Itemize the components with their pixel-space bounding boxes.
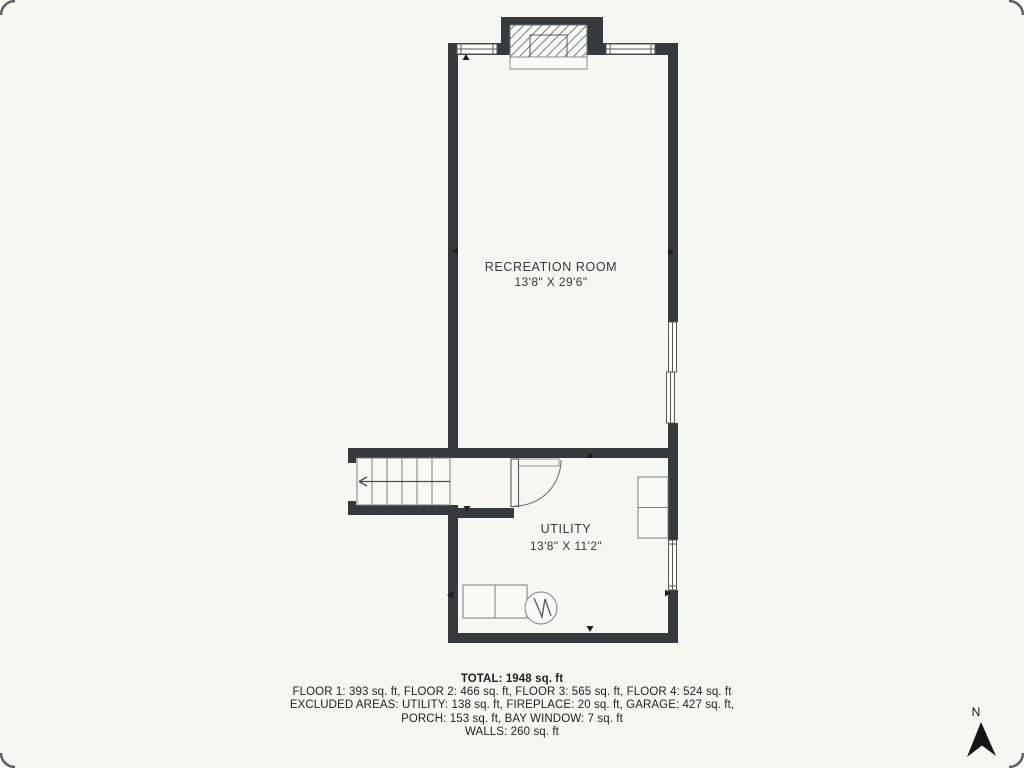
summary-floors: FLOOR 1: 393 sq. ft, FLOOR 2: 466 sq. ft… [0, 686, 1024, 699]
area-summary: TOTAL: 1948 sq. ft FLOOR 1: 393 sq. ft, … [0, 673, 1024, 739]
water-heater [525, 592, 557, 624]
window-top-left [457, 44, 497, 54]
window-right-lower [667, 372, 675, 423]
recreation-room-label: RECREATION ROOM [485, 260, 617, 274]
window-right-upper [669, 322, 677, 372]
utility-room-label: UTILITY [541, 522, 592, 536]
door [511, 459, 561, 507]
washer-dryer [463, 585, 527, 618]
door-leaf [511, 459, 519, 507]
north-label: N [972, 705, 981, 719]
door-opening-frame [513, 459, 559, 466]
fireplace [501, 17, 603, 69]
summary-total: TOTAL: 1948 sq. ft [0, 673, 1024, 686]
summary-excluded-areas: EXCLUDED AREAS: UTILITY: 138 sq. ft, FIR… [0, 699, 1024, 712]
fireplace-hearth [510, 57, 587, 69]
corner-arcs [1, 1, 1023, 767]
stairs [357, 458, 450, 505]
recreation-room-dimensions: 13'8" X 29'6" [514, 275, 587, 289]
util-height-arrow-bottom [587, 626, 594, 632]
floor-plan-drawing [0, 0, 1024, 768]
door-swing-arc [515, 460, 561, 506]
walls [348, 43, 678, 643]
cabinet [638, 477, 668, 538]
window-top-right [606, 44, 655, 54]
fireplace-hatch [510, 25, 587, 57]
summary-excluded-areas-cont: PORCH: 153 sq. ft, BAY WINDOW: 7 sq. ft [0, 713, 1024, 726]
utility-room-dimensions: 13'8" X 11'2" [530, 539, 602, 553]
floor-plan-page: RECREATION ROOM 13'8" X 29'6" UTILITY 13… [0, 0, 1024, 768]
summary-walls: WALLS: 260 sq. ft [0, 726, 1024, 739]
window-utility [669, 540, 677, 590]
